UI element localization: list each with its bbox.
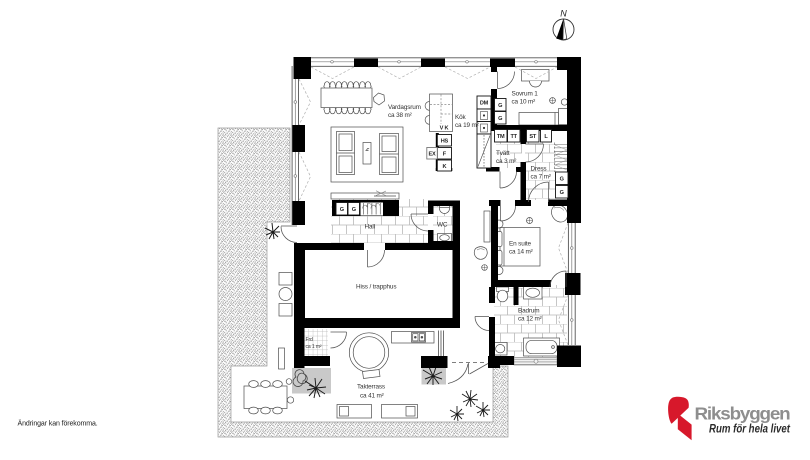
svg-text:Riksbyggen: Riksbyggen [695, 404, 791, 424]
svg-text:TM: TM [497, 134, 505, 140]
svg-text:K: K [442, 164, 446, 170]
svg-text:ca 10 m²: ca 10 m² [512, 99, 536, 106]
svg-text:Rum för hela livet: Rum för hela livet [709, 422, 791, 436]
svg-text:Kök: Kök [455, 114, 467, 121]
svg-text:ca 12 m²: ca 12 m² [518, 316, 542, 323]
svg-text:Ändringar kan förekomma.: Ändringar kan förekomma. [18, 420, 98, 428]
svg-text:ca 19 m²: ca 19 m² [455, 122, 479, 129]
svg-text:Hall: Hall [365, 224, 375, 231]
svg-text:ca 14 m²: ca 14 m² [509, 249, 533, 256]
svg-text:Frd: Frd [306, 337, 314, 343]
svg-text:N: N [560, 9, 567, 19]
svg-text:G: G [560, 190, 564, 196]
svg-text:Vardagsrum: Vardagsrum [388, 104, 421, 111]
svg-text:G: G [560, 177, 564, 183]
svg-text:ca 41 m²: ca 41 m² [360, 393, 384, 400]
svg-text:Sovrum 1: Sovrum 1 [512, 91, 539, 98]
svg-text:V K: V K [440, 126, 449, 132]
svg-text:TT: TT [510, 134, 517, 140]
svg-text:EX: EX [428, 152, 436, 158]
svg-text:Dress: Dress [531, 166, 547, 173]
svg-text:Tvätt: Tvätt [496, 150, 510, 157]
svg-text:G: G [498, 116, 502, 122]
svg-text:WC: WC [437, 222, 448, 229]
svg-text:Takterrass: Takterrass [357, 384, 385, 391]
svg-text:ca 1 m²: ca 1 m² [306, 344, 322, 350]
svg-text:ca 7 m²: ca 7 m² [531, 174, 551, 181]
svg-text:ca 38 m²: ca 38 m² [388, 112, 412, 119]
svg-text:Badrum: Badrum [518, 308, 539, 315]
svg-text:En suite: En suite [509, 241, 531, 248]
svg-text:G: G [498, 103, 502, 109]
svg-text:ST: ST [529, 134, 537, 140]
svg-text:HS: HS [441, 139, 449, 145]
svg-text:ca 3 m²: ca 3 m² [496, 158, 516, 165]
svg-text:G: G [352, 207, 356, 213]
svg-text:DM: DM [480, 101, 489, 107]
svg-text:G: G [340, 207, 344, 213]
svg-text:Hiss / trapphus: Hiss / trapphus [356, 284, 396, 291]
